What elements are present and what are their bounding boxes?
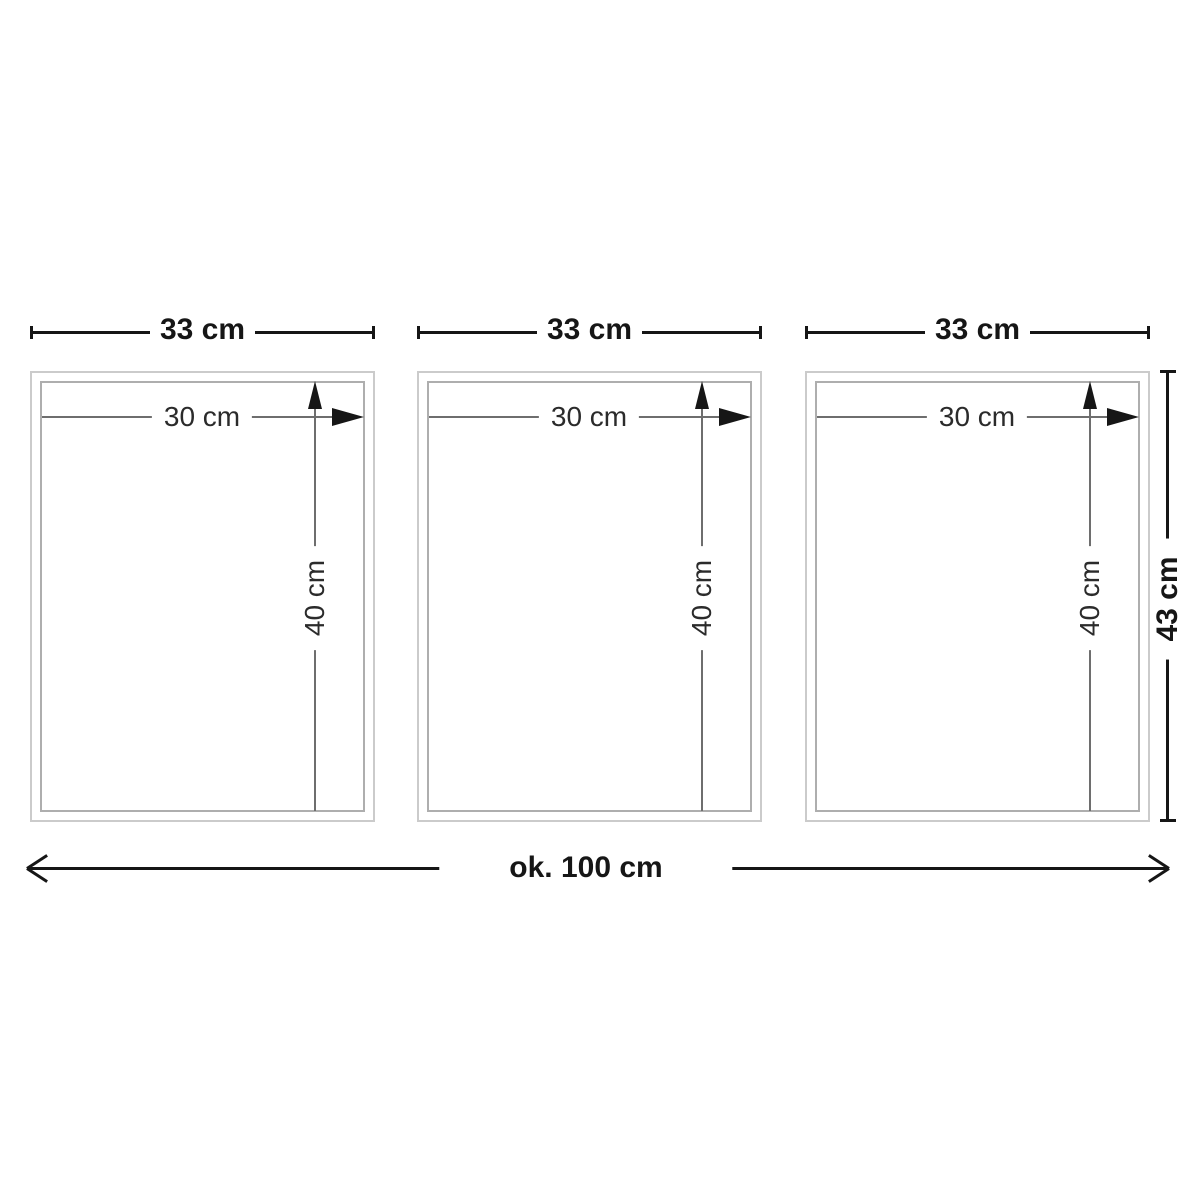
height-dimension-bottom-tick (1160, 819, 1176, 822)
arrow-up-icon (308, 381, 322, 409)
frame2-inner-width-label: 30 cm (539, 400, 639, 434)
dimension-line (1030, 331, 1147, 334)
frame2-width-label: 33 cm (547, 315, 632, 345)
dimension-end-tick (1147, 326, 1150, 339)
dimension-diagram: 33 cm 33 cm 33 cm 30 cm 40 cm 30 cm (0, 0, 1200, 1200)
frame2: 30 cm 40 cm (417, 371, 762, 822)
arrow-up-icon (1083, 381, 1097, 409)
dimension-line (255, 331, 372, 334)
dimension-line (33, 331, 150, 334)
dimension-line (420, 331, 537, 334)
dimension-end-tick (759, 326, 762, 339)
dimension-line (642, 331, 759, 334)
frame3-width-label: 33 cm (935, 315, 1020, 345)
frame3-inner-width-label: 30 cm (927, 400, 1027, 434)
frame1-width-label: 33 cm (160, 315, 245, 345)
arrow-right-icon (719, 408, 751, 426)
frame3-inner-height-label: 40 cm (1073, 546, 1107, 650)
frame1-inner-height-label: 40 cm (298, 546, 332, 650)
frame2-width-dimension: 33 cm (417, 318, 762, 346)
frame1-inner-width-label: 30 cm (152, 400, 252, 434)
arrow-right-icon (332, 408, 364, 426)
total-width-label: ok. 100 cm (439, 850, 732, 886)
dimension-line (808, 331, 925, 334)
dimension-end-tick (372, 326, 375, 339)
total-height-label: 43 cm (1150, 538, 1186, 659)
frame2-inner-height-label: 40 cm (685, 546, 719, 650)
frame1-width-dimension: 33 cm (30, 318, 375, 346)
frame1: 30 cm 40 cm (30, 371, 375, 822)
frame3: 30 cm 40 cm (805, 371, 1150, 822)
frame3-width-dimension: 33 cm (805, 318, 1150, 346)
arrow-right-icon (1107, 408, 1139, 426)
arrow-up-icon (695, 381, 709, 409)
